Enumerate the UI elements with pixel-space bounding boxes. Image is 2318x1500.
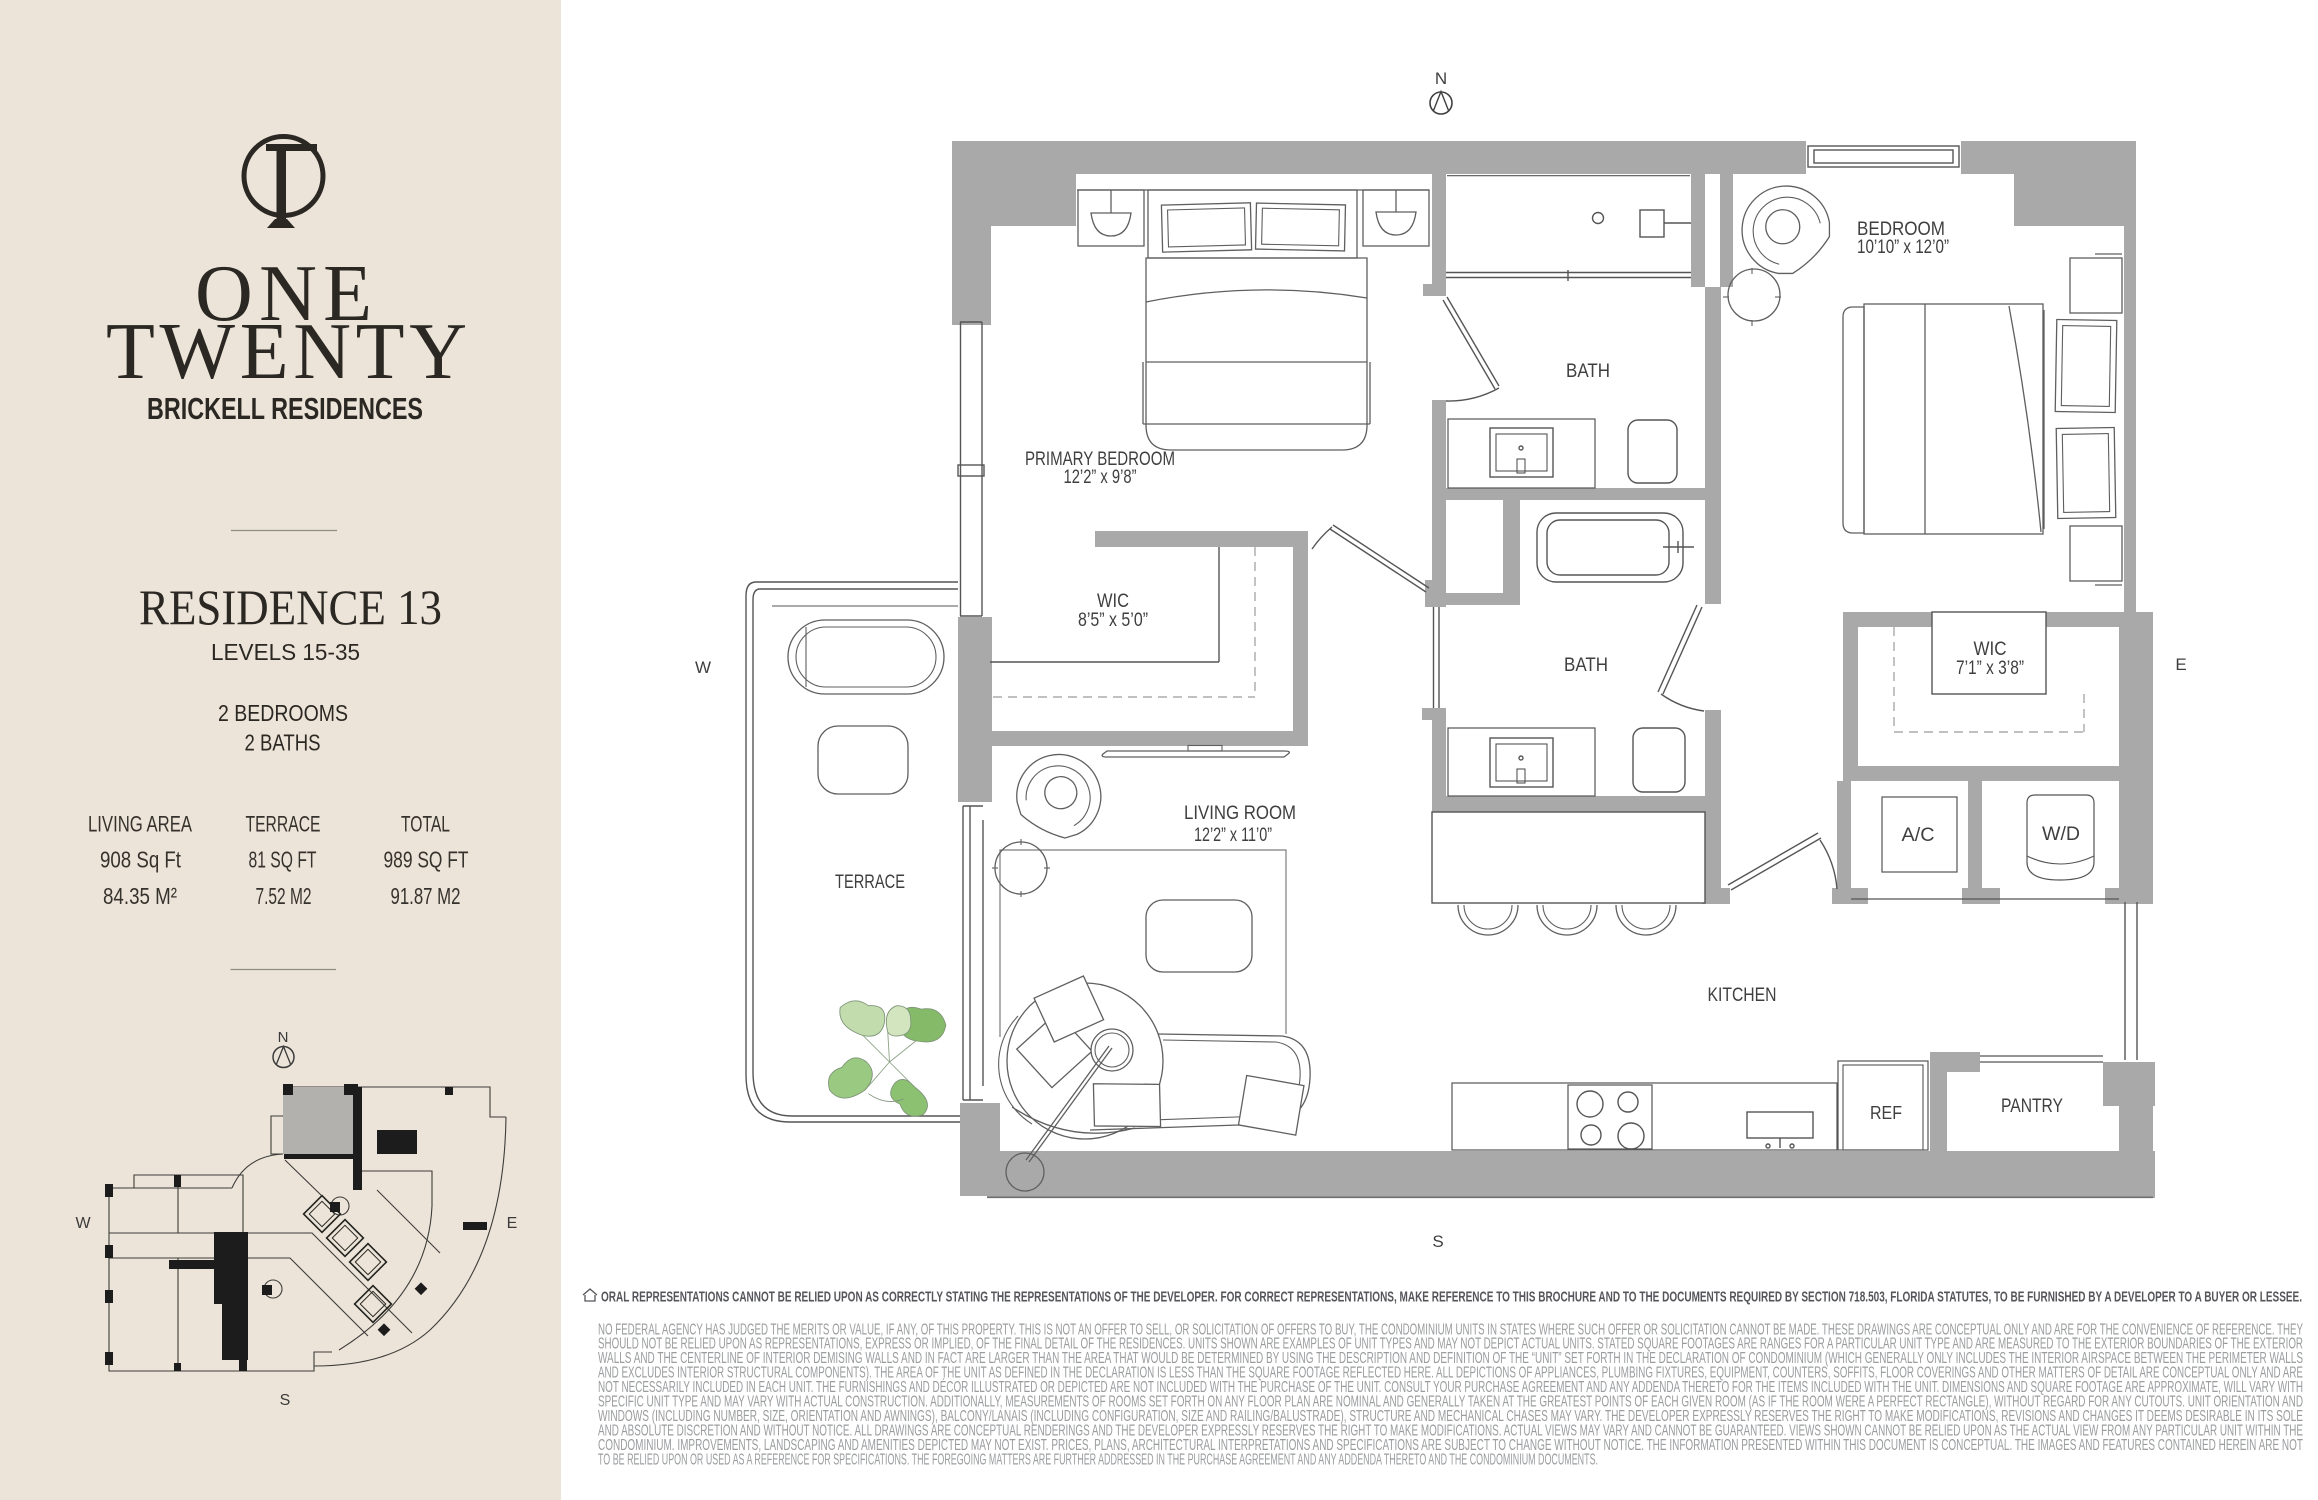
svg-text:RESIDENCE 13: RESIDENCE 13 [139,579,442,635]
svg-text:REF: REF [1870,1103,1902,1123]
svg-text:8’5” x 5’0”: 8’5” x 5’0” [1078,610,1148,631]
svg-text:PANTRY: PANTRY [2001,1096,2063,1117]
svg-text:BATH: BATH [1566,361,1610,382]
svg-text:S: S [280,1392,291,1409]
svg-text:TO BE RELIED UPON OR USED AS A: TO BE RELIED UPON OR USED AS A REFERENCE… [598,1451,1598,1468]
svg-text:A/C: A/C [1902,825,1935,846]
svg-text:LIVING ROOM: LIVING ROOM [1184,803,1296,824]
svg-text:TWENTY: TWENTY [106,308,467,396]
svg-text:BATH: BATH [1564,655,1608,676]
svg-text:TOTAL: TOTAL [401,812,450,837]
svg-text:LEVELS 15-35: LEVELS 15-35 [211,639,360,665]
svg-text:N: N [278,1029,289,1046]
svg-text:N: N [1435,69,1447,88]
svg-text:KITCHEN: KITCHEN [1708,985,1777,1006]
svg-text:7’1” x 3’8”: 7’1” x 3’8” [1956,658,2024,679]
svg-text:W: W [695,658,711,677]
svg-text:2 BATHS: 2 BATHS [245,730,321,756]
svg-text:12’2” x 9’8”: 12’2” x 9’8” [1064,467,1137,488]
svg-text:12’2” x 11’0”: 12’2” x 11’0” [1194,825,1272,846]
svg-text:7.52 M2: 7.52 M2 [256,883,312,909]
svg-text:W: W [75,1215,91,1232]
svg-text:S: S [1432,1232,1443,1251]
svg-text:10’10” x 12’0”: 10’10” x 12’0” [1857,237,1949,258]
svg-text:81 SQ FT: 81 SQ FT [249,847,317,873]
svg-text:W/D: W/D [2042,824,2080,845]
svg-text:E: E [507,1215,518,1232]
svg-text:TERRACE: TERRACE [246,812,321,837]
svg-text:989 SQ FT: 989 SQ FT [384,847,469,873]
svg-text:BRICKELL RESIDENCES: BRICKELL RESIDENCES [147,391,423,426]
svg-text:84.35 M²: 84.35 M² [103,883,177,909]
svg-text:LIVING AREA: LIVING AREA [88,812,192,837]
svg-text:TERRACE: TERRACE [835,872,905,893]
svg-text:WIC: WIC [1097,591,1129,612]
svg-text:2 BEDROOMS: 2 BEDROOMS [218,700,348,726]
svg-text:ORAL REPRESENTATIONS CANNOT BE: ORAL REPRESENTATIONS CANNOT BE RELIED UP… [601,1289,2302,1306]
svg-text:91.87 M2: 91.87 M2 [391,883,461,909]
svg-text:908 Sq Ft: 908 Sq Ft [100,847,181,873]
svg-text:WIC: WIC [1974,639,2007,660]
svg-text:E: E [2175,655,2186,674]
